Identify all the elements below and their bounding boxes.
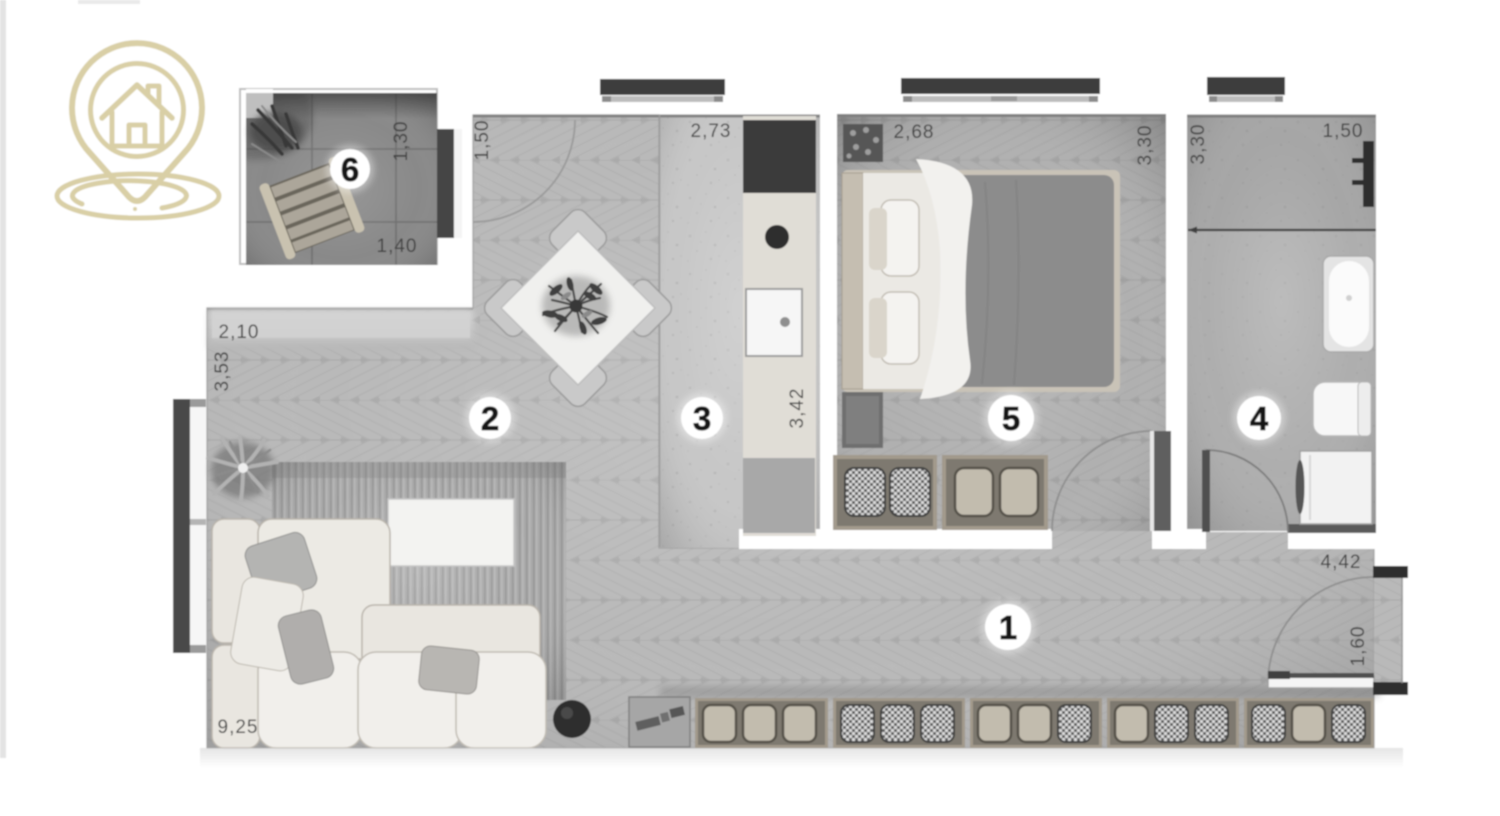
svg-text:3: 3 [693, 400, 711, 437]
svg-text:9,25: 9,25 [218, 717, 259, 738]
svg-text:2,68: 2,68 [894, 122, 935, 143]
svg-text:3,42: 3,42 [787, 388, 808, 429]
svg-text:5: 5 [1002, 400, 1020, 437]
svg-text:2,73: 2,73 [691, 121, 732, 142]
svg-text:1,40: 1,40 [377, 236, 418, 257]
svg-text:1: 1 [999, 609, 1017, 646]
svg-text:3,30: 3,30 [1188, 124, 1209, 165]
svg-text:2: 2 [481, 400, 499, 437]
svg-text:1,30: 1,30 [391, 121, 412, 162]
svg-text:3,30: 3,30 [1135, 125, 1156, 166]
svg-text:4,42: 4,42 [1321, 552, 1362, 573]
svg-text:1,50: 1,50 [472, 120, 493, 161]
svg-text:3,53: 3,53 [212, 351, 233, 392]
svg-text:1,50: 1,50 [1323, 121, 1364, 142]
svg-text:6: 6 [341, 151, 359, 188]
svg-text:4: 4 [1250, 400, 1269, 437]
svg-text:1,60: 1,60 [1348, 626, 1369, 667]
svg-text:2,10: 2,10 [219, 322, 260, 343]
